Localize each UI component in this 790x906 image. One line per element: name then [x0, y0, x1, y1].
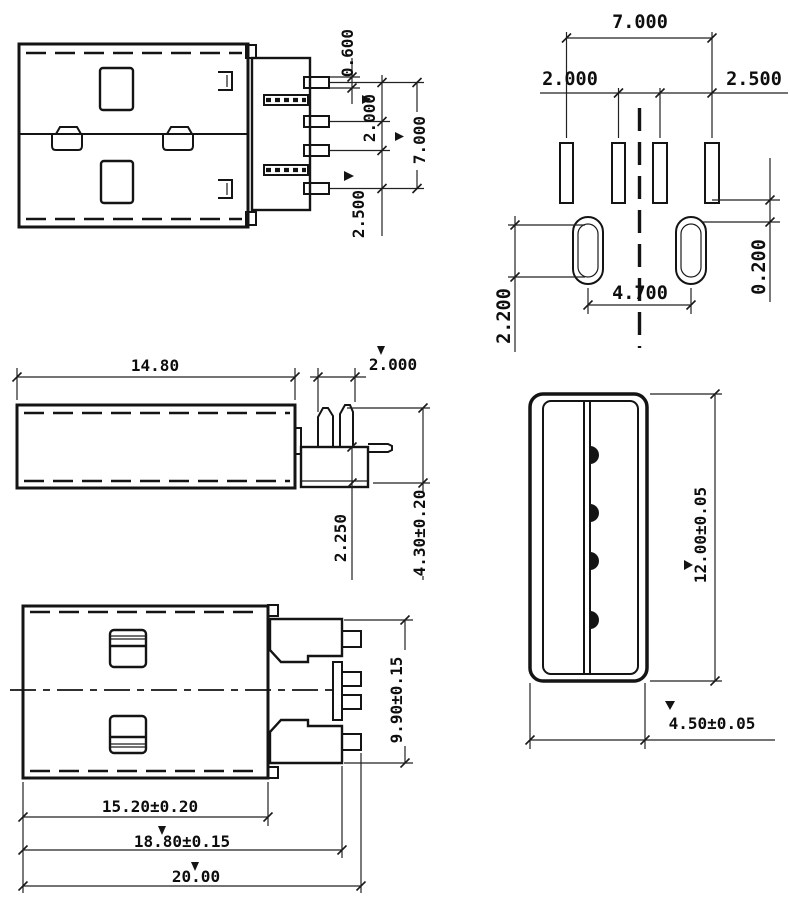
dim-body-width: 9.90±0.15: [387, 657, 406, 744]
dim-contact-pitch-inner: 2.000: [360, 94, 379, 142]
dim-pad-pitch-outer: 2.500: [726, 69, 782, 90]
dim-pad-span: 7.000: [612, 12, 668, 33]
dim-mount-height: 4.30±0.20: [410, 490, 429, 577]
dim-leg-length: 2.250: [331, 514, 350, 562]
dim-face-width: 12.00±0.05: [691, 487, 710, 583]
dim-overall-length: 20.00: [172, 867, 220, 886]
dim-face-height: 4.50±0.05: [669, 714, 756, 733]
dim-shell-length: 15.20±0.20: [102, 797, 198, 816]
dim-pad-pitch-inner: 2.000: [542, 69, 598, 90]
dim-contact-pitch-outer: 2.500: [349, 190, 368, 238]
dim-shell-length: 14.80: [131, 356, 179, 375]
dim-length-to-pads: 18.80±0.15: [134, 832, 230, 851]
dim-hole-span: 4.700: [612, 283, 668, 304]
drawing-canvas: 0.600 2.000 7.000 2.500 7.000 2.000: [0, 0, 790, 906]
dim-hole-length: 2.200: [494, 288, 515, 344]
dim-hole-offset: 0.200: [749, 239, 770, 295]
dim-contact-thickness: 0.600: [338, 29, 357, 77]
dim-leg-pitch: 2.000: [369, 355, 417, 374]
drawing-sheet: 0.600 2.000 7.000 2.500 7.000 2.000: [0, 0, 790, 906]
dim-contact-span: 7.000: [410, 116, 429, 164]
